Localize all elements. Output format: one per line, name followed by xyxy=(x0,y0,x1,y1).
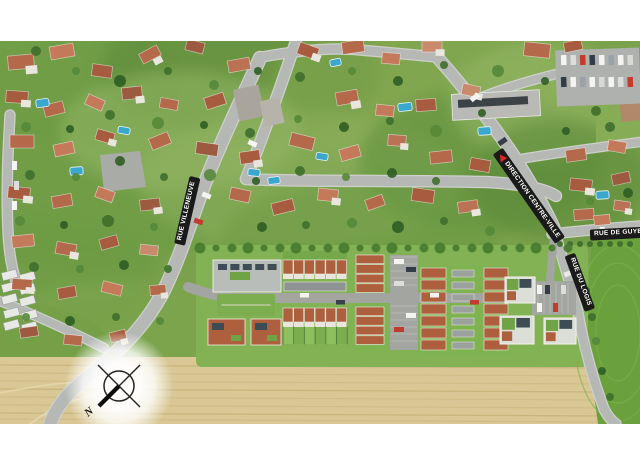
compass-rose: N xyxy=(64,331,174,424)
compass-cross-line-ne xyxy=(119,365,140,386)
direction-arrow-icon xyxy=(497,152,508,162)
aerial-photo: RUE VILLENEUVE DIRECTION CENTRE-VILLE RU… xyxy=(0,41,640,424)
compass-north-label: N xyxy=(81,404,96,420)
compass-needle xyxy=(99,386,119,406)
page-background: RUE VILLENEUVE DIRECTION CENTRE-VILLE RU… xyxy=(0,0,640,470)
